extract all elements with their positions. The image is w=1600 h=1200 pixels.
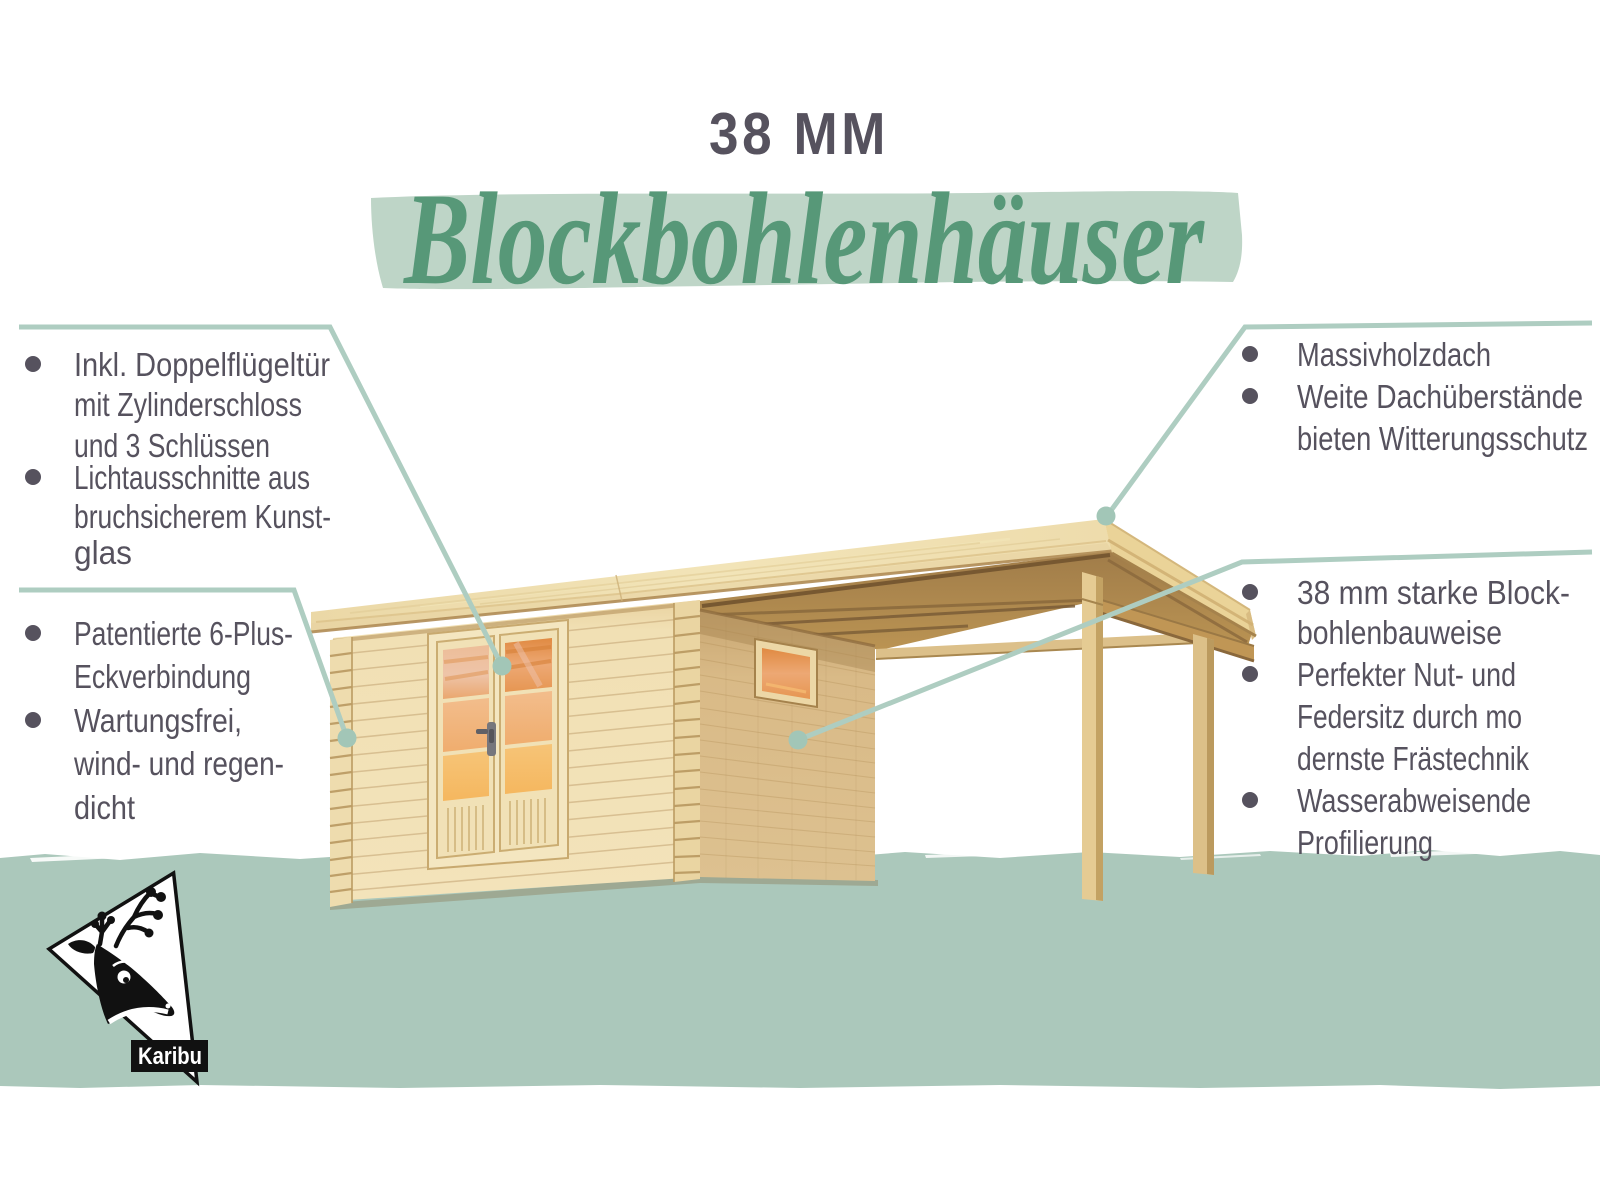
svg-text:mit Zylinderschloss: mit Zylinderschloss — [74, 386, 302, 423]
svg-text:glas: glas — [74, 534, 132, 571]
svg-text:Wartungsfrei,: Wartungsfrei, — [74, 702, 242, 739]
svg-text:dicht: dicht — [74, 789, 135, 826]
svg-text:dernste Frästechnik: dernste Frästechnik — [1297, 740, 1529, 777]
svg-text:Perfekter Nut- und: Perfekter Nut- und — [1297, 656, 1516, 693]
svg-text:Patentierte 6-Plus-: Patentierte 6-Plus- — [74, 615, 293, 652]
svg-text:Blockbohlenhäuser: Blockbohlenhäuser — [402, 165, 1205, 312]
svg-text:Profilierung: Profilierung — [1297, 824, 1433, 861]
svg-text:bruchsicherem Kunst-: bruchsicherem Kunst- — [74, 498, 331, 535]
svg-text:Wasserabweisende: Wasserabweisende — [1297, 782, 1531, 819]
svg-text:38 MM: 38 MM — [709, 101, 889, 167]
svg-text:38 mm starke Block-: 38 mm starke Block- — [1297, 574, 1570, 611]
svg-text:Weite Dachüberstände: Weite Dachüberstände — [1297, 378, 1583, 415]
svg-text:Inkl. Doppelflügeltür: Inkl. Doppelflügeltür — [74, 346, 330, 383]
svg-text:bohlenbauweise: bohlenbauweise — [1297, 614, 1502, 651]
svg-text:Massivholzdach: Massivholzdach — [1297, 336, 1491, 373]
svg-text:Karibu: Karibu — [138, 1043, 202, 1070]
svg-text:Federsitz durch mo: Federsitz durch mo — [1297, 698, 1522, 735]
svg-text:bieten Witterungsschutz: bieten Witterungsschutz — [1297, 420, 1588, 457]
svg-text:Lichtausschnitte aus: Lichtausschnitte aus — [74, 459, 310, 496]
svg-text:Eckverbindung: Eckverbindung — [74, 658, 251, 695]
svg-text:wind- und regen-: wind- und regen- — [73, 745, 284, 782]
